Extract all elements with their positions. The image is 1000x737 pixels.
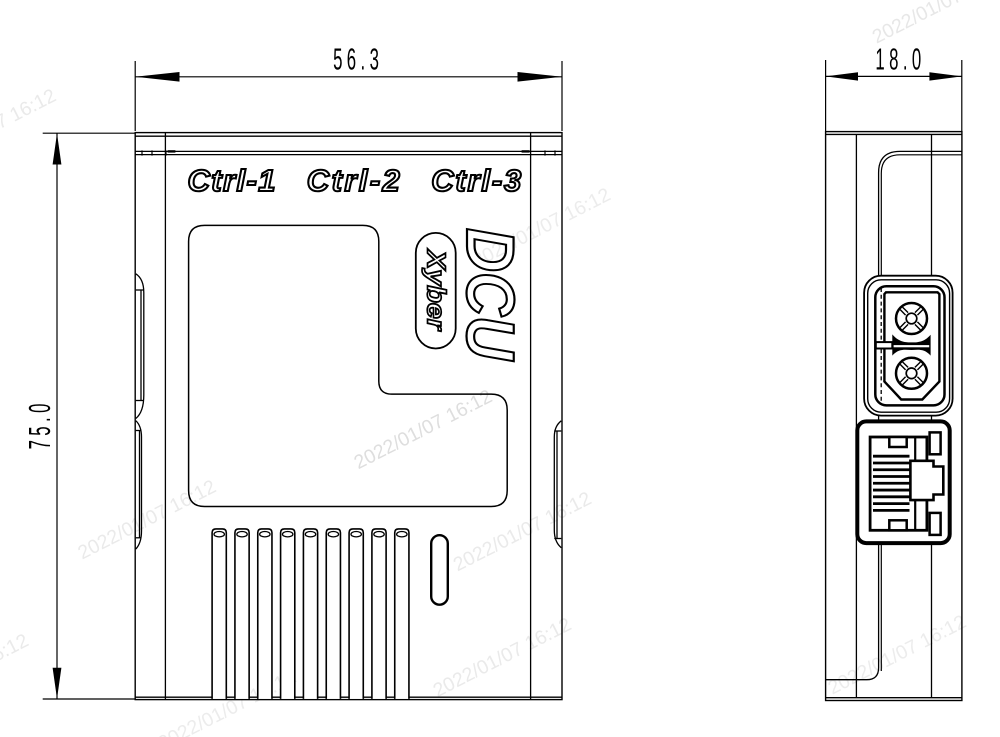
svg-text:75.0: 75.0 bbox=[24, 399, 57, 449]
svg-text:Ctrl-2: Ctrl-2 bbox=[307, 163, 400, 198]
svg-text:DCU: DCU bbox=[452, 228, 528, 362]
svg-text:Ctrl-1: Ctrl-1 bbox=[188, 163, 276, 198]
svg-text:Ctrl-3: Ctrl-3 bbox=[431, 163, 521, 198]
svg-text:18.0: 18.0 bbox=[875, 43, 925, 76]
svg-text:56.3: 56.3 bbox=[333, 43, 383, 76]
svg-text:Xyber: Xyber bbox=[422, 248, 452, 332]
